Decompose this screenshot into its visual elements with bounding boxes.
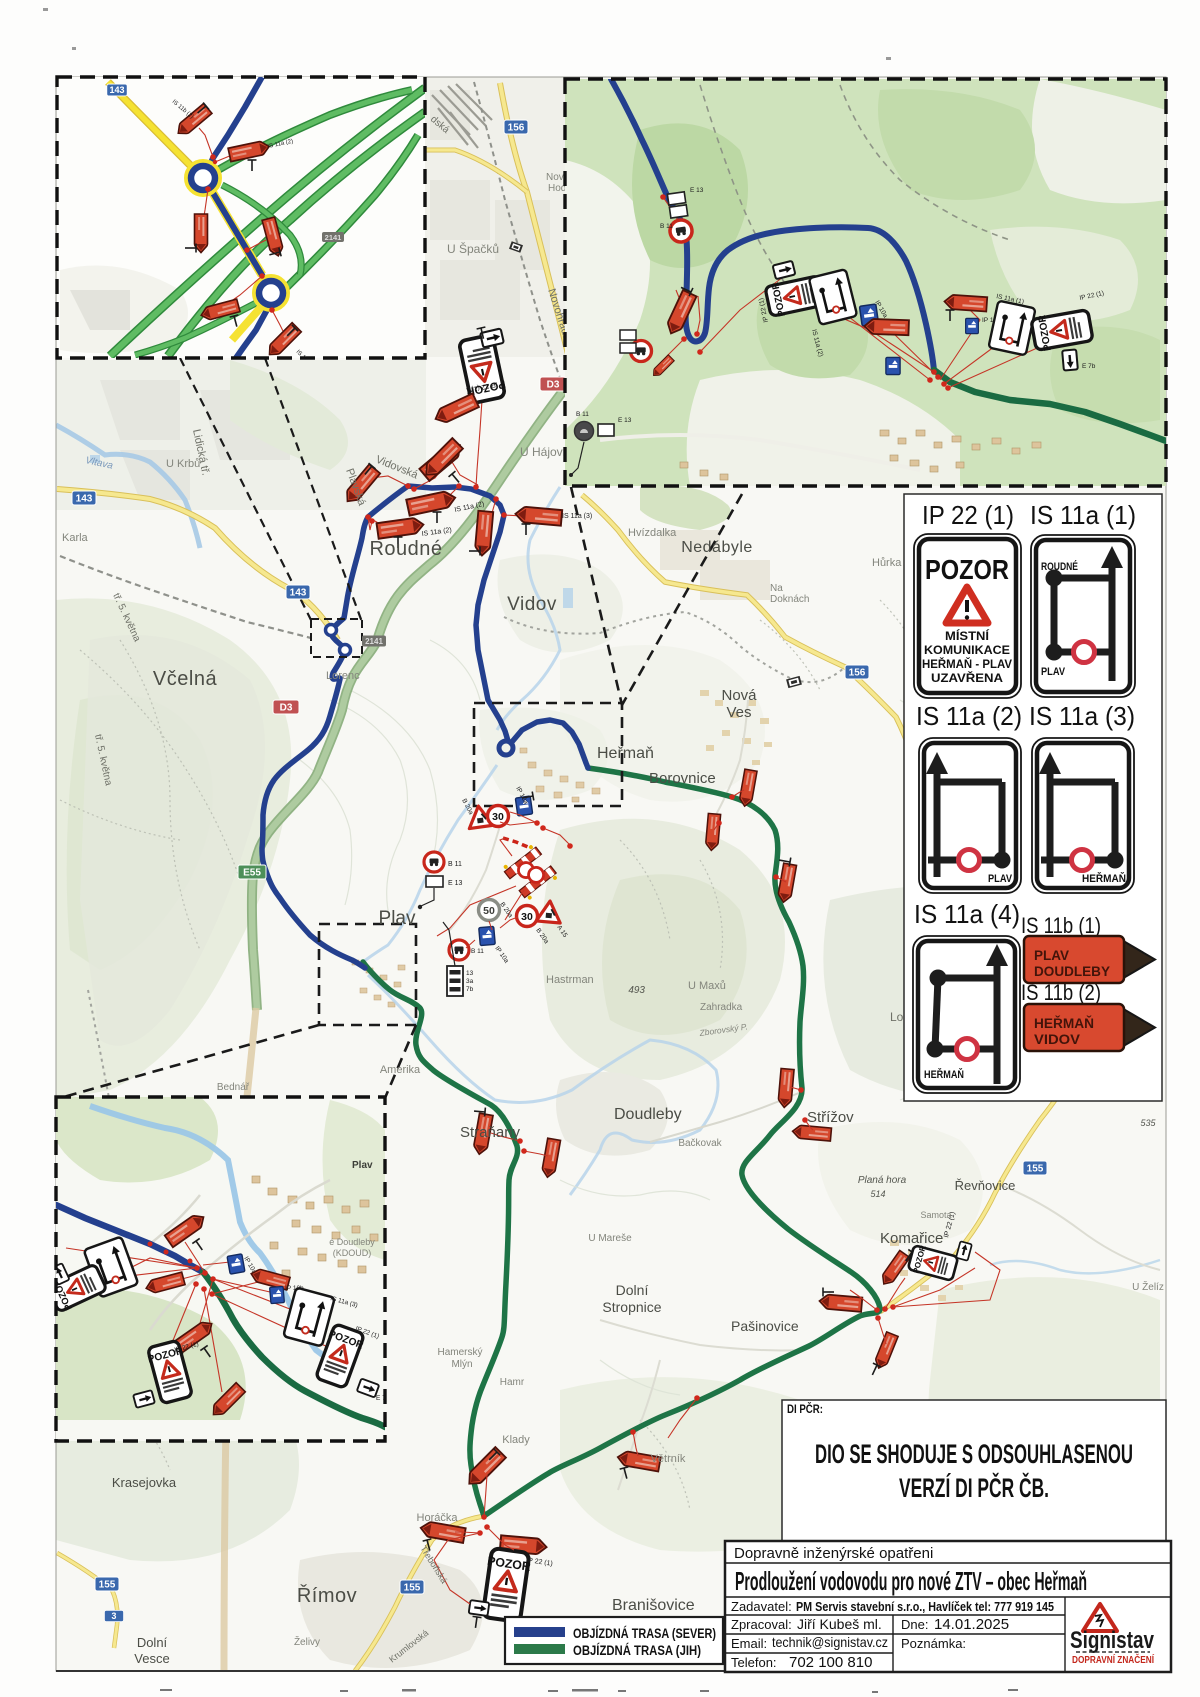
svg-text:Zadavatel:: Zadavatel: [731, 1599, 792, 1614]
svg-text:Plav: Plav [352, 1160, 373, 1171]
svg-text:155: 155 [404, 1583, 421, 1594]
svg-text:702 100 810: 702 100 810 [789, 1654, 872, 1671]
svg-text:7b: 7b [466, 986, 474, 993]
svg-text:DIO SE SHODUJE S ODSOUHLASENOU: DIO SE SHODUJE S ODSOUHLASENOU [815, 1439, 1133, 1469]
svg-text:B 11: B 11 [660, 223, 673, 230]
svg-text:DI PČR:: DI PČR: [787, 1401, 823, 1416]
svg-text:Dopravně inženýrské opatřeni: Dopravně inženýrské opatřeni [734, 1545, 933, 1562]
svg-text:é Doudleby: é Doudleby [329, 1237, 375, 1247]
svg-text:Roudné: Roudné [369, 538, 442, 560]
svg-text:IP 22 (1): IP 22 (1) [922, 500, 1014, 530]
svg-text:Zpracoval:: Zpracoval: [731, 1617, 792, 1632]
svg-text:B 11: B 11 [448, 861, 462, 868]
svg-text:Pašinovice: Pašinovice [731, 1318, 799, 1334]
svg-text:PM Servis stavební s.r.o., Hav: PM Servis stavební s.r.o., Havlíček tel:… [796, 1599, 1054, 1614]
svg-text:U Krbů: U Krbů [166, 458, 200, 470]
svg-text:Dolní: Dolní [616, 1282, 649, 1298]
svg-text:technik@signistav.cz: technik@signistav.cz [772, 1634, 888, 1650]
svg-text:143: 143 [290, 588, 307, 599]
svg-text:Klady: Klady [502, 1434, 530, 1446]
svg-text:Krasejovka: Krasejovka [112, 1475, 177, 1490]
svg-text:514: 514 [870, 1189, 885, 1199]
svg-text:Nedábyle: Nedábyle [681, 539, 753, 556]
svg-text:Ves: Ves [726, 704, 751, 721]
svg-text:Email:: Email: [731, 1636, 767, 1651]
svg-text:Jiří Kubeš ml.: Jiří Kubeš ml. [797, 1616, 882, 1632]
svg-text:Lorenc: Lorenc [326, 670, 360, 682]
svg-text:D3: D3 [280, 703, 293, 714]
svg-text:Hamr: Hamr [500, 1377, 525, 1388]
svg-text:IS 11a (1): IS 11a (1) [1030, 500, 1136, 530]
svg-text:KOMUNIKACE: KOMUNIKACE [924, 643, 1010, 657]
svg-text:Řevňovice: Řevňovice [955, 1178, 1016, 1193]
svg-text:Větrník: Větrník [651, 1453, 686, 1465]
svg-text:E55: E55 [243, 868, 261, 879]
svg-text:Poznámka:: Poznámka: [901, 1636, 966, 1651]
svg-text:14.01.2025: 14.01.2025 [934, 1616, 1009, 1633]
svg-text:Telefon:: Telefon: [731, 1655, 777, 1670]
svg-text:Mlýn: Mlýn [451, 1359, 472, 1370]
svg-text:Branišovice: Branišovice [612, 1597, 695, 1614]
svg-text:Stropnice: Stropnice [602, 1299, 661, 1315]
svg-text:VERZÍ DI PČR ČB.: VERZÍ DI PČR ČB. [899, 1472, 1049, 1503]
svg-text:Amerika: Amerika [380, 1064, 421, 1076]
svg-text:HEŘMAŇ: HEŘMAŇ [1082, 872, 1126, 885]
svg-text:Hvízdalka: Hvízdalka [628, 527, 677, 539]
svg-text:IS 11a (4): IS 11a (4) [914, 899, 1020, 929]
svg-text:OBJÍZDNÁ TRASA (SEVER): OBJÍZDNÁ TRASA (SEVER) [573, 1626, 716, 1641]
svg-text:U Maxů: U Maxů [688, 980, 726, 992]
svg-text:D3: D3 [547, 380, 560, 391]
svg-text:156: 156 [508, 123, 525, 134]
svg-text:Střížov: Střížov [807, 1109, 854, 1126]
svg-text:B 11: B 11 [576, 411, 589, 418]
svg-text:Plav: Plav [379, 908, 416, 929]
svg-text:Hamerský: Hamerský [437, 1347, 482, 1358]
svg-text:Samota: Samota [920, 1210, 951, 1220]
svg-text:Hastrman: Hastrman [546, 974, 594, 986]
svg-text:DOPRAVNÍ ZNAČENÍ: DOPRAVNÍ ZNAČENÍ [1072, 1653, 1155, 1666]
svg-text:E 13: E 13 [448, 880, 463, 887]
svg-text:Doudleby: Doudleby [614, 1106, 682, 1123]
svg-text:535: 535 [1140, 1118, 1156, 1128]
svg-text:U Špačků: U Špačků [447, 241, 499, 256]
svg-text:PLAV: PLAV [1034, 948, 1069, 963]
svg-text:IS 11a (3): IS 11a (3) [1029, 701, 1135, 731]
svg-text:155: 155 [99, 1580, 116, 1591]
svg-text:E 7b: E 7b [1082, 363, 1096, 370]
svg-text:POZOR: POZOR [925, 554, 1009, 585]
svg-text:Heřmaň: Heřmaň [597, 745, 654, 762]
svg-text:VIDOV: VIDOV [1034, 1032, 1080, 1047]
svg-text:Planá hora: Planá hora [858, 1175, 907, 1186]
svg-text:156: 156 [849, 668, 866, 679]
svg-text:2141: 2141 [365, 637, 383, 646]
svg-text:IS 11b (2): IS 11b (2) [1021, 980, 1101, 1005]
svg-text:Straňany: Straňany [460, 1124, 521, 1141]
svg-text:143: 143 [109, 85, 124, 95]
svg-text:HEŘMAŇ: HEŘMAŇ [924, 1068, 964, 1081]
svg-text:DOUDLEBY: DOUDLEBY [1034, 964, 1110, 979]
svg-text:155: 155 [1027, 1164, 1044, 1175]
svg-text:Bačkovak: Bačkovak [678, 1138, 722, 1149]
svg-text:Dne:: Dne: [901, 1617, 928, 1632]
svg-text:493: 493 [628, 985, 645, 996]
svg-text:HEŘMAŇ - PLAV: HEŘMAŇ - PLAV [922, 656, 1012, 671]
svg-text:IS 11a (2): IS 11a (2) [916, 701, 1022, 731]
svg-text:2141: 2141 [325, 233, 342, 242]
svg-text:OBJÍZDNÁ TRASA (JIH): OBJÍZDNÁ TRASA (JIH) [573, 1643, 701, 1658]
svg-text:Vidov: Vidov [507, 594, 557, 615]
svg-text:Doknách: Doknách [770, 594, 809, 605]
svg-text:13: 13 [466, 970, 474, 977]
svg-text:U Mareše: U Mareše [588, 1233, 632, 1244]
svg-text:ROUDNÉ: ROUDNÉ [1041, 560, 1078, 573]
svg-text:B 11: B 11 [471, 948, 484, 955]
svg-text:UZAVŘENA: UZAVŘENA [931, 670, 1003, 685]
svg-text:Želivy: Želivy [294, 1635, 320, 1648]
svg-text:E 13: E 13 [690, 187, 704, 194]
svg-text:Horáčka: Horáčka [417, 1512, 459, 1524]
svg-text:Dolní: Dolní [137, 1635, 168, 1650]
svg-text:Komařice: Komařice [880, 1230, 943, 1247]
svg-text:Hůrka: Hůrka [872, 557, 902, 569]
svg-text:Zahradka: Zahradka [700, 1002, 743, 1013]
svg-text:PLAV: PLAV [988, 873, 1013, 885]
svg-text:Včelná: Včelná [153, 668, 218, 690]
svg-text:Vesce: Vesce [134, 1651, 169, 1666]
svg-text:PLAV: PLAV [1041, 666, 1066, 678]
svg-text:Římov: Římov [297, 1584, 357, 1607]
svg-text:IS 11a (3): IS 11a (3) [562, 513, 592, 520]
svg-text:MÍSTNÍ: MÍSTNÍ [945, 628, 990, 643]
svg-text:HEŘMAŇ: HEŘMAŇ [1034, 1016, 1094, 1031]
svg-text:Borovnice: Borovnice [649, 770, 716, 787]
svg-text:Signistav: Signistav [1070, 1627, 1155, 1654]
svg-text:IS 11b (1): IS 11b (1) [1021, 913, 1101, 938]
svg-text:(KDOUD): (KDOUD) [333, 1248, 372, 1258]
svg-text:Karla: Karla [62, 532, 89, 544]
svg-text:143: 143 [76, 494, 93, 505]
svg-text:Nová: Nová [721, 687, 757, 704]
svg-text:Bednář: Bednář [217, 1082, 250, 1093]
svg-text:Prodloužení vodovodu pro nové: Prodloužení vodovodu pro nové ZTV – obec… [735, 1566, 1087, 1596]
svg-text:3a: 3a [466, 978, 474, 985]
svg-text:E 13: E 13 [618, 417, 632, 424]
svg-text:Na: Na [770, 583, 783, 594]
svg-text:U Želíz: U Želíz [1132, 1280, 1164, 1293]
svg-text:3: 3 [112, 1611, 117, 1621]
